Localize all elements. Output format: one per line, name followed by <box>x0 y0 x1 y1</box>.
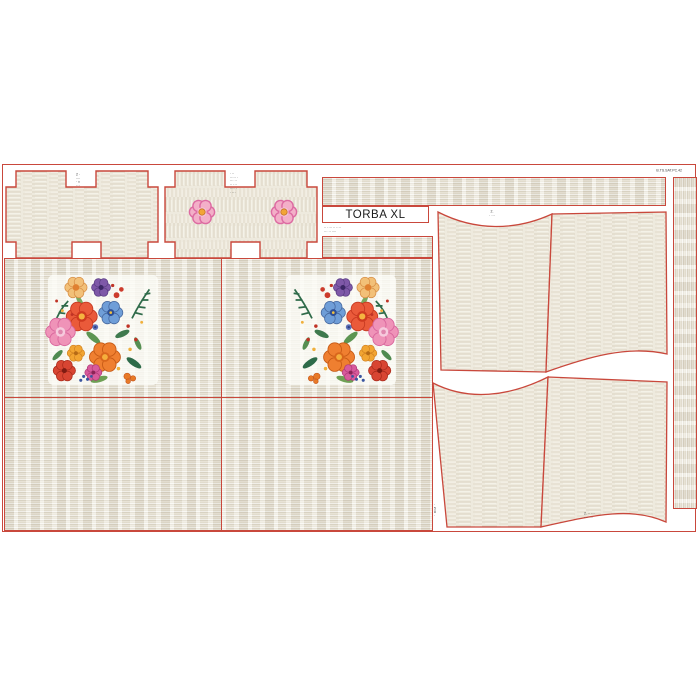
piece-body-top-right <box>546 212 667 372</box>
piece-top-strip <box>322 177 666 206</box>
gusset-plain-label: 2 · ···· · × ··· <box>66 173 90 188</box>
panel-divider-horizontal <box>5 397 432 398</box>
fabric-panel-sheet: 2 · ···· · × ··· · ·· ····· · ··· ·· ·· … <box>0 0 700 700</box>
small-flower-print <box>189 200 214 223</box>
piece-handle-strip <box>673 177 697 509</box>
panel-title: TORBA XL <box>345 209 405 221</box>
piece-body-bottom-left <box>433 377 548 527</box>
bouquet-print-right <box>283 272 399 388</box>
small-flower-print <box>271 200 296 223</box>
left-edge-scale: · 5 8 · <box>434 503 442 518</box>
bouquet-print-left <box>45 272 161 388</box>
bottom-right-note: 2. ·· ··· · ·· ··· <box>584 512 624 520</box>
gusset-flowers-label: · ·· ····· · ··· ·· ·· ··· ···· · · ··· <box>230 172 255 195</box>
title-subtext: ·· ···· ·· ···· ··· ·· ···· <box>324 226 369 234</box>
body-piece-mark: 2. · ··· <box>486 210 498 218</box>
main-panel-block <box>4 258 433 531</box>
body-pieces-group <box>430 205 670 531</box>
title-box: TORBA XL <box>322 206 429 223</box>
panel-code: B.TS.SAT.PC.42 <box>622 169 682 173</box>
piece-body-top-left <box>438 212 552 372</box>
piece-small-strip <box>322 236 433 258</box>
piece-body-bottom-right <box>541 377 667 527</box>
panel-divider-vertical <box>221 259 222 530</box>
